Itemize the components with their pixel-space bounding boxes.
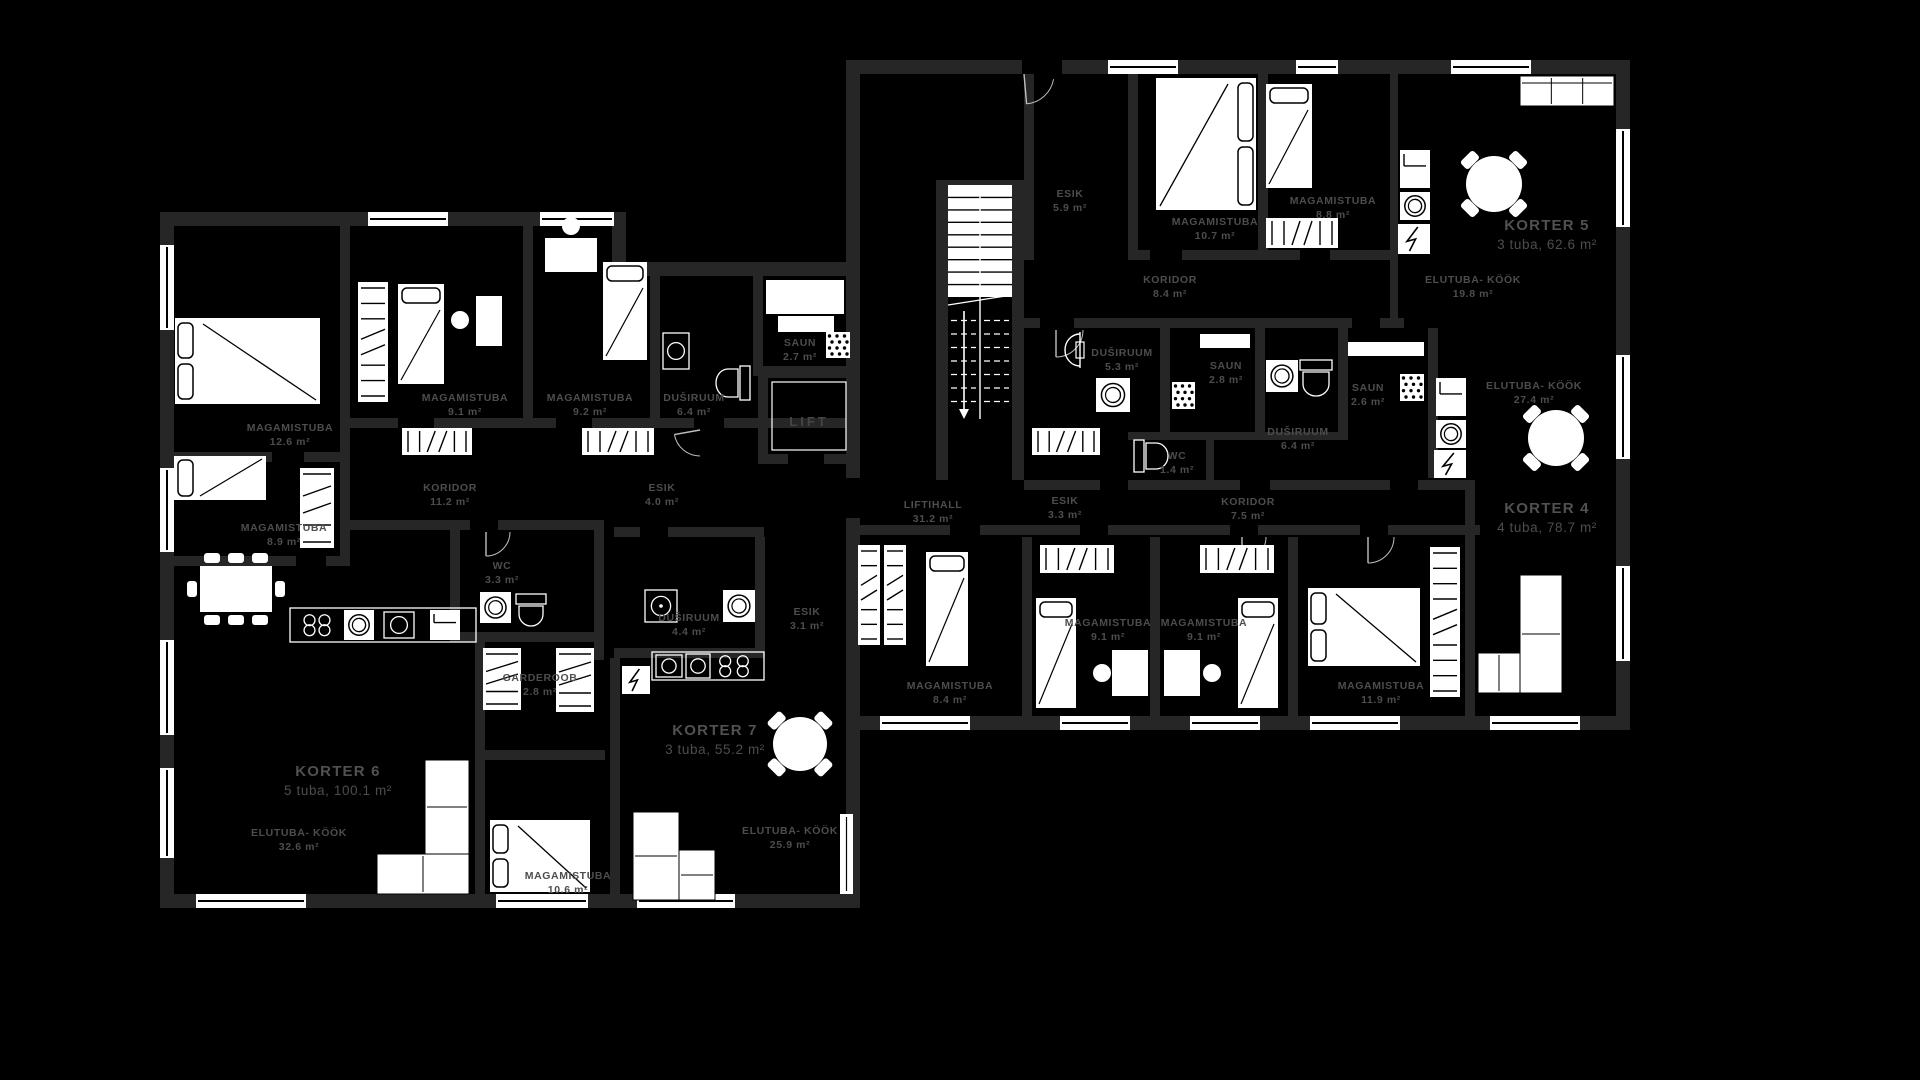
sauna-heater-icon bbox=[1400, 374, 1424, 401]
room-name: MAGAMISTUBA bbox=[525, 870, 612, 882]
room-area: 3.3 m² bbox=[485, 574, 519, 586]
room-area: 3.1 m² bbox=[790, 620, 824, 632]
window-icon bbox=[160, 640, 174, 735]
apartment-info: 3 tuba, 55.2 m² bbox=[665, 742, 765, 757]
double-bed-icon bbox=[175, 318, 320, 404]
dresser-icon bbox=[1040, 545, 1114, 573]
room-name: SAUN bbox=[784, 337, 816, 349]
room-name: KORIDOR bbox=[423, 482, 477, 494]
room-name: ELUTUBA- KÖÖK bbox=[251, 826, 347, 839]
room-area: 5.9 m² bbox=[1053, 202, 1087, 214]
room-area: 12.6 m² bbox=[270, 436, 310, 448]
washing-machine-icon bbox=[1436, 420, 1466, 448]
window-icon bbox=[160, 245, 174, 330]
single-bed-icon bbox=[398, 284, 444, 384]
window-icon bbox=[1451, 60, 1531, 74]
room-name: DUŠIRUUM bbox=[1267, 425, 1328, 438]
room-name: WC bbox=[493, 560, 512, 572]
chair-icon bbox=[1203, 664, 1221, 682]
room-name: KORIDOR bbox=[1221, 496, 1275, 508]
single-bed-icon bbox=[1266, 84, 1312, 188]
room-area: 9.1 m² bbox=[448, 406, 482, 418]
room-area: 11.9 m² bbox=[1361, 694, 1401, 706]
room-area: 4.0 m² bbox=[645, 496, 679, 508]
room-area: 9.1 m² bbox=[1187, 631, 1221, 643]
radiator-icon bbox=[840, 814, 853, 894]
boiler-icon bbox=[1434, 450, 1466, 478]
room-area: 8.9 m² bbox=[267, 536, 301, 548]
dresser-icon bbox=[1200, 545, 1274, 573]
room-area: 3.3 m² bbox=[1048, 509, 1082, 521]
window-icon bbox=[1108, 60, 1178, 74]
room-area: 4.4 m² bbox=[672, 626, 706, 638]
room-name: ESIK bbox=[1057, 188, 1084, 200]
boiler-icon bbox=[1398, 224, 1430, 254]
boiler-icon bbox=[622, 666, 650, 694]
room-name: ELUTUBA- KÖÖK bbox=[1425, 273, 1521, 286]
room-area: 19.8 m² bbox=[1453, 288, 1493, 300]
room-area: 31.2 m² bbox=[913, 513, 953, 525]
sofa-icon bbox=[1520, 76, 1614, 106]
sauna-bench-icon bbox=[766, 280, 844, 314]
room-area: 9.1 m² bbox=[1091, 631, 1125, 643]
dresser-icon bbox=[402, 428, 472, 455]
double-bed-icon bbox=[1156, 78, 1256, 210]
window-icon bbox=[368, 212, 448, 226]
apartment-info: 4 tuba, 78.7 m² bbox=[1497, 520, 1597, 535]
window-icon bbox=[160, 468, 174, 552]
room-area: 2.6 m² bbox=[1351, 396, 1385, 408]
round-table-icon bbox=[766, 710, 833, 777]
dresser-icon bbox=[1032, 428, 1100, 455]
window-icon bbox=[1060, 716, 1130, 730]
room-name: DUŠIRUUM bbox=[658, 611, 719, 624]
window-icon bbox=[196, 894, 306, 908]
apartment-info: 3 tuba, 62.6 m² bbox=[1497, 237, 1597, 252]
room-name: MAGAMISTUBA bbox=[1161, 617, 1248, 629]
room-area: 8.8 m² bbox=[1316, 209, 1350, 221]
single-bed-icon bbox=[1238, 598, 1278, 708]
room-area: 6.4 m² bbox=[677, 406, 711, 418]
room-name: MAGAMISTUBA bbox=[1290, 195, 1377, 207]
desk-icon bbox=[1112, 650, 1148, 696]
apartment-name: KORTER 7 bbox=[672, 722, 757, 739]
sauna-heater-icon bbox=[826, 332, 850, 358]
single-bed-icon bbox=[603, 262, 647, 360]
room-name: SAUN bbox=[1210, 360, 1242, 372]
room-name: KORIDOR bbox=[1143, 274, 1197, 286]
room-name: MAGAMISTUBA bbox=[1172, 216, 1259, 228]
room-area: 2.8 m² bbox=[1209, 374, 1243, 386]
single-bed-icon bbox=[926, 552, 968, 666]
chair-icon bbox=[562, 217, 580, 235]
apartment-name: KORTER 6 bbox=[295, 763, 380, 780]
wardrobe-icon bbox=[884, 545, 906, 645]
apartment-name: KORTER 4 bbox=[1504, 500, 1589, 517]
room-name: ESIK bbox=[794, 606, 821, 618]
sauna-bench-icon bbox=[778, 316, 834, 332]
room-name: MAGAMISTUBA bbox=[547, 392, 634, 404]
room-name: LIFTIHALL bbox=[904, 499, 962, 511]
window-icon bbox=[1190, 716, 1260, 730]
room-area: 10.7 m² bbox=[1195, 230, 1235, 242]
desk-icon bbox=[1164, 650, 1200, 696]
fridge-icon bbox=[1436, 378, 1466, 416]
room-area: 1.4 m² bbox=[1160, 464, 1194, 476]
single-bed-icon bbox=[174, 456, 266, 500]
apartment-name: KORTER 5 bbox=[1504, 217, 1589, 234]
room-area: 7.5 m² bbox=[1231, 510, 1265, 522]
chair-icon bbox=[451, 311, 469, 329]
window-icon bbox=[1616, 129, 1630, 227]
room-area: 10.6 m² bbox=[548, 884, 588, 896]
room-area: 9.2 m² bbox=[573, 406, 607, 418]
washing-machine-icon bbox=[1096, 378, 1130, 412]
room-name: DUŠIRUUM bbox=[663, 391, 724, 404]
room-name: MAGAMISTUBA bbox=[1338, 680, 1425, 692]
room-area: 2.8 m² bbox=[523, 686, 557, 698]
room-area: 8.4 m² bbox=[1153, 288, 1187, 300]
lift-label: LIFT bbox=[789, 414, 828, 429]
room-name: ESIK bbox=[649, 482, 676, 494]
room-area: 32.6 m² bbox=[279, 841, 319, 853]
room-area: 5.3 m² bbox=[1105, 361, 1139, 373]
wardrobe-icon bbox=[300, 468, 334, 548]
washing-machine-icon bbox=[480, 592, 511, 623]
room-area: 11.2 m² bbox=[430, 496, 470, 508]
fridge-icon bbox=[430, 610, 460, 640]
wardrobe-icon bbox=[358, 282, 388, 402]
room-area: 27.4 m² bbox=[1514, 394, 1554, 406]
room-name: DUŠIRUUM bbox=[1091, 346, 1152, 359]
fridge-icon bbox=[1400, 150, 1430, 188]
desk-icon bbox=[476, 296, 502, 346]
sauna-bench-icon bbox=[1200, 334, 1250, 348]
floor-plan: LIFT MAGAMISTUBA12.6 m²MAGAMISTUBA9.1 m²… bbox=[0, 0, 1920, 1080]
room-name: MAGAMISTUBA bbox=[907, 680, 994, 692]
dresser-icon bbox=[1266, 218, 1338, 248]
room-area: 25.9 m² bbox=[770, 839, 810, 851]
round-table-icon bbox=[1460, 150, 1529, 219]
window-icon bbox=[1310, 716, 1400, 730]
washing-machine-icon bbox=[723, 590, 755, 622]
window-icon bbox=[1490, 716, 1580, 730]
room-name: ELUTUBA- KÖÖK bbox=[1486, 379, 1582, 392]
window-icon bbox=[496, 894, 588, 908]
single-bed-icon bbox=[1036, 598, 1076, 708]
washing-machine-icon bbox=[344, 610, 374, 640]
chair-icon bbox=[1093, 664, 1111, 682]
room-area: 2.7 m² bbox=[783, 351, 817, 363]
washing-machine-icon bbox=[1266, 360, 1298, 392]
room-name: MAGAMISTUBA bbox=[247, 422, 334, 434]
window-icon bbox=[1616, 566, 1630, 661]
room-name: SAUN bbox=[1352, 382, 1384, 394]
apartment-info: 5 tuba, 100.1 m² bbox=[284, 783, 392, 798]
room-name: MAGAMISTUBA bbox=[241, 522, 328, 534]
room-name: ELUTUBA- KÖÖK bbox=[742, 824, 838, 837]
sauna-heater-icon bbox=[1172, 382, 1195, 409]
sauna-bench-icon bbox=[1348, 342, 1424, 356]
dresser-icon bbox=[582, 428, 654, 455]
double-bed-icon bbox=[1308, 588, 1420, 666]
room-area: 6.4 m² bbox=[1281, 440, 1315, 452]
wardrobe-icon bbox=[1430, 547, 1460, 697]
room-area: 8.4 m² bbox=[933, 694, 967, 706]
room-name: ESIK bbox=[1052, 495, 1079, 507]
window-icon bbox=[880, 716, 970, 730]
floor-plan-page: { "meta": { "background": "#000000", "wa… bbox=[0, 0, 1920, 1080]
room-name: MAGAMISTUBA bbox=[422, 392, 509, 404]
room-name: WC bbox=[1168, 450, 1187, 462]
washing-machine-icon bbox=[1400, 192, 1430, 220]
wardrobe-icon bbox=[858, 545, 880, 645]
round-table-icon bbox=[1522, 404, 1591, 473]
room-name: GARDEROOB bbox=[503, 672, 578, 684]
window-icon bbox=[160, 768, 174, 858]
desk-icon bbox=[545, 238, 597, 272]
room-name: MAGAMISTUBA bbox=[1065, 617, 1152, 629]
window-icon bbox=[1296, 60, 1338, 74]
window-icon bbox=[1616, 355, 1630, 459]
